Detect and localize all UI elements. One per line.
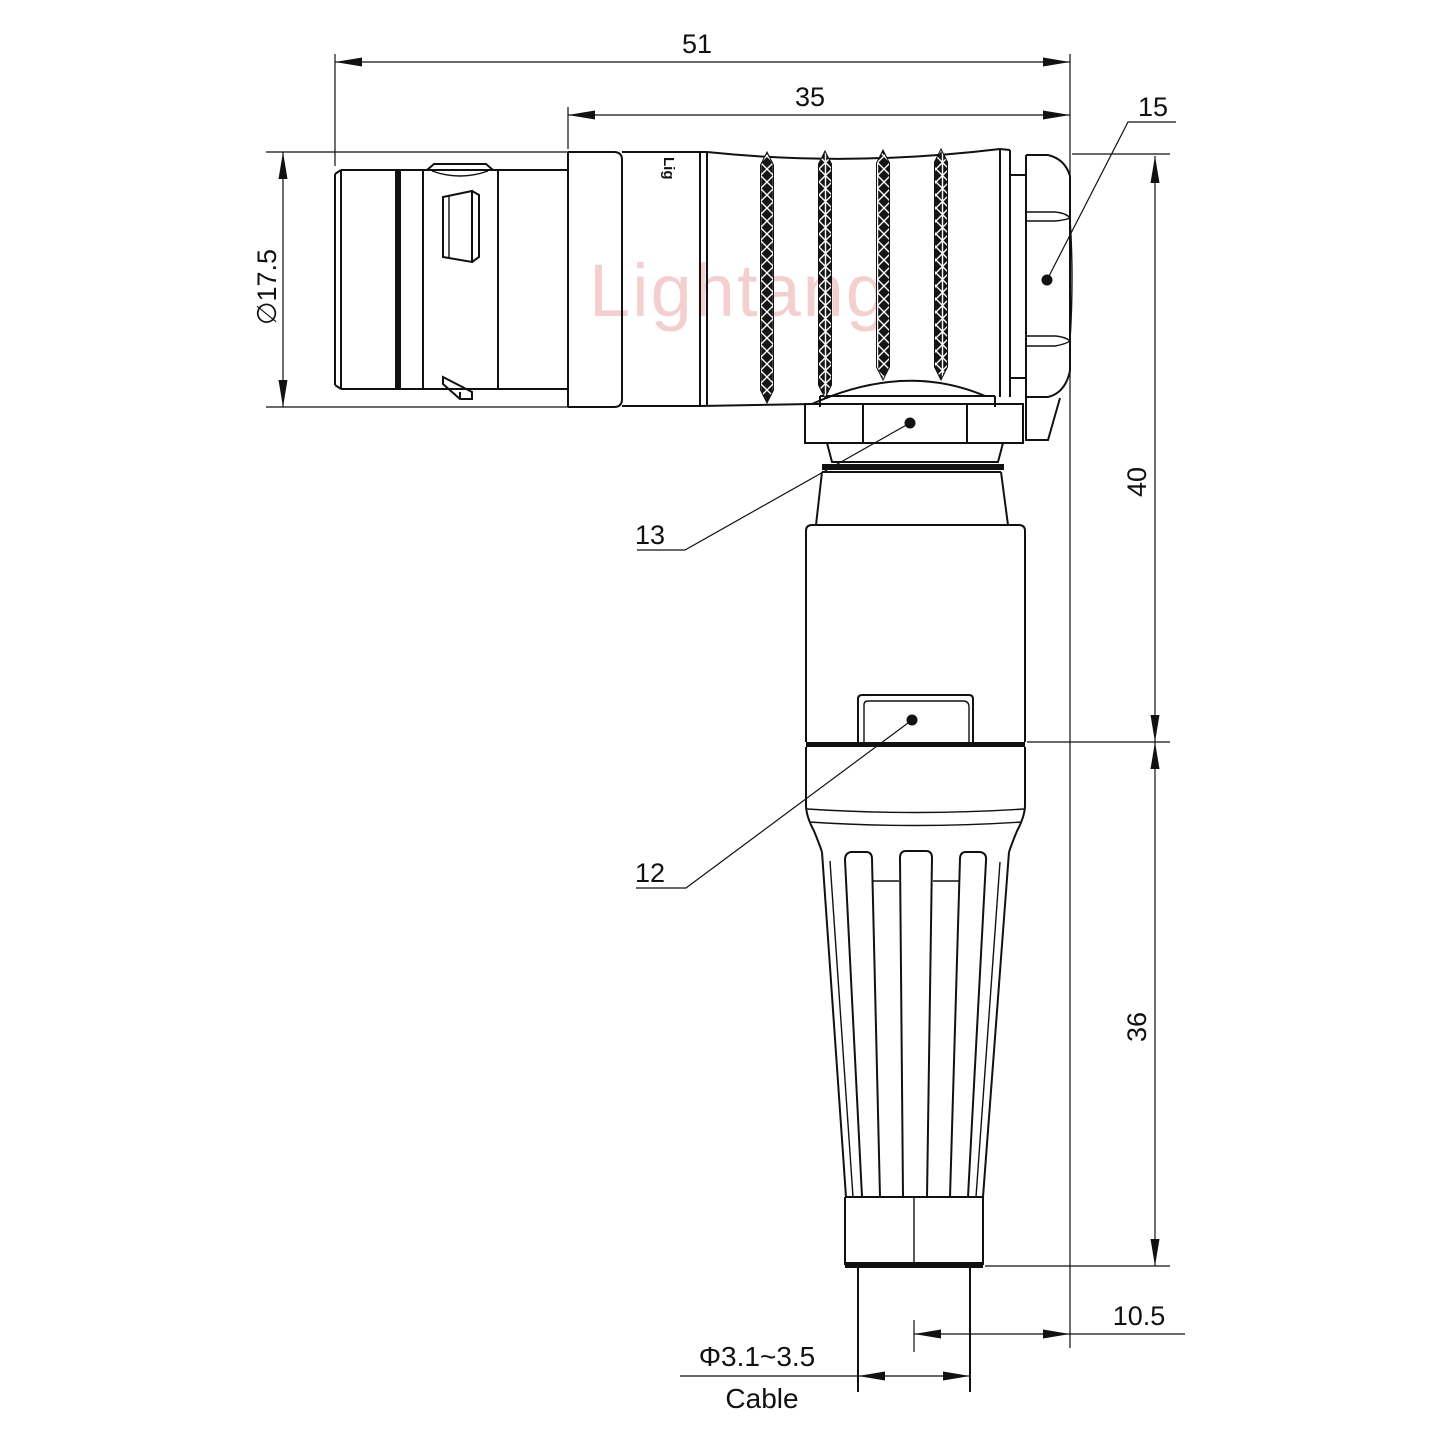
dim-height-lower-text: 36 bbox=[1122, 1012, 1152, 1042]
ferrule-bottom-edge bbox=[845, 1262, 983, 1268]
callout-coupling-nut: 13 bbox=[635, 418, 916, 551]
callout-housing-text: 12 bbox=[635, 858, 665, 888]
dim-front-length-text: 35 bbox=[795, 82, 825, 112]
dim-cable-diameter-text: Φ3.1~3.5 bbox=[699, 1341, 816, 1372]
hex-end-nut bbox=[1010, 155, 1072, 440]
plug-release-sleeve bbox=[335, 164, 568, 399]
callout-hex-nut: 15 bbox=[1042, 92, 1177, 286]
housing-boot-joint bbox=[806, 742, 1025, 747]
watermark-text: Lightang bbox=[589, 249, 889, 332]
lower-housing bbox=[806, 472, 1025, 742]
callout-housing: 12 bbox=[635, 715, 918, 889]
gasket-band bbox=[822, 464, 1004, 470]
sleeve-dark-band bbox=[395, 170, 401, 389]
cable-label-text: Cable bbox=[725, 1383, 798, 1414]
drawing-canvas: Lightang bbox=[0, 0, 1440, 1440]
strain-relief-boot bbox=[806, 747, 1025, 1265]
dim-cable-offset-text: 10.5 bbox=[1113, 1301, 1166, 1331]
callout-coupling-nut-text: 13 bbox=[635, 520, 665, 550]
dimension-heights: 40 36 bbox=[985, 154, 1170, 1266]
dimension-plug-diameter: ∅17.5 bbox=[252, 152, 576, 407]
dimension-annotations: 51 35 ∅17.5 40 36 bbox=[252, 29, 1185, 1414]
connector-part: Lig bbox=[335, 149, 1072, 1392]
brand-mark: Lig bbox=[660, 157, 677, 180]
callout-hex-nut-text: 15 bbox=[1138, 92, 1168, 122]
dimension-overall-length: 51 bbox=[335, 29, 1070, 166]
dim-height-upper-text: 40 bbox=[1122, 467, 1152, 497]
dim-plug-diameter-text: ∅17.5 bbox=[252, 249, 282, 325]
technical-drawing: Lightang bbox=[0, 0, 1440, 1440]
dim-overall-length-text: 51 bbox=[682, 29, 712, 59]
dimension-cable-diameter: Φ3.1~3.5 Cable bbox=[680, 1341, 970, 1414]
dimension-cable-offset: 10.5 bbox=[914, 1301, 1185, 1352]
dimension-front-length: 35 bbox=[568, 82, 1070, 149]
elbow-coupling-nut bbox=[805, 404, 1023, 462]
